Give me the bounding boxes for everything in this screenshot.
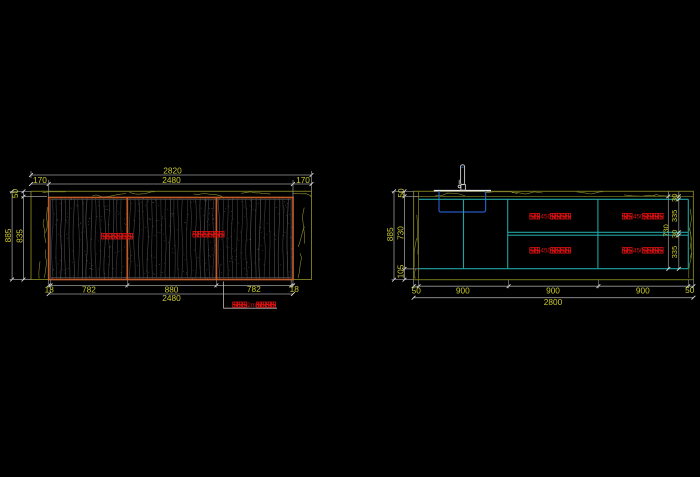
svg-text:335: 335 [670, 210, 679, 223]
svg-text:782: 782 [82, 285, 96, 295]
svg-text:30: 30 [670, 194, 679, 202]
svg-text:900: 900 [546, 286, 560, 296]
svg-text:730: 730 [396, 226, 406, 240]
svg-text:50: 50 [412, 286, 422, 296]
svg-text:105: 105 [396, 264, 406, 278]
svg-text:2480: 2480 [162, 293, 181, 303]
svg-text:835: 835 [14, 229, 24, 243]
svg-text:30: 30 [670, 230, 679, 238]
svg-text:900: 900 [456, 286, 470, 296]
svg-text:170: 170 [296, 175, 310, 185]
svg-text:50: 50 [396, 188, 406, 198]
svg-text:335: 335 [670, 246, 679, 259]
svg-text:730: 730 [661, 224, 670, 237]
svg-text:900: 900 [636, 286, 650, 296]
svg-text:2480: 2480 [162, 175, 181, 185]
svg-text:2800: 2800 [544, 297, 563, 307]
svg-text:50: 50 [685, 285, 695, 295]
svg-text:50: 50 [10, 189, 20, 199]
svg-text:885: 885 [3, 228, 13, 242]
svg-text:782: 782 [247, 284, 261, 294]
svg-text:170: 170 [33, 175, 47, 185]
svg-text:885: 885 [385, 227, 395, 241]
